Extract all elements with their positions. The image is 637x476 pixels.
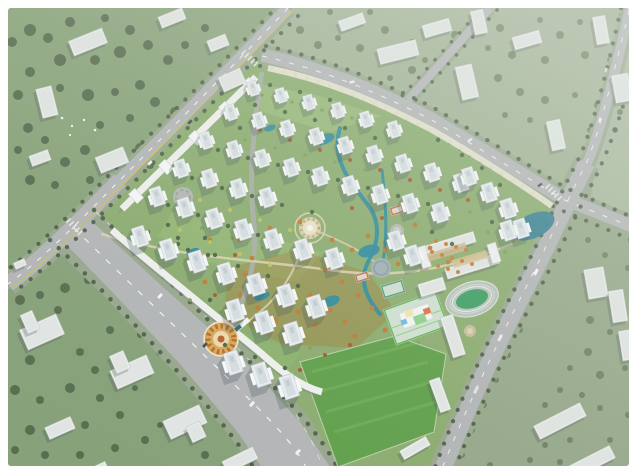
render-canvas — [0, 0, 637, 476]
aerial-masterplan-render — [0, 0, 637, 476]
scene-layers — [4, 5, 637, 476]
atmospheric-haze — [8, 8, 629, 466]
